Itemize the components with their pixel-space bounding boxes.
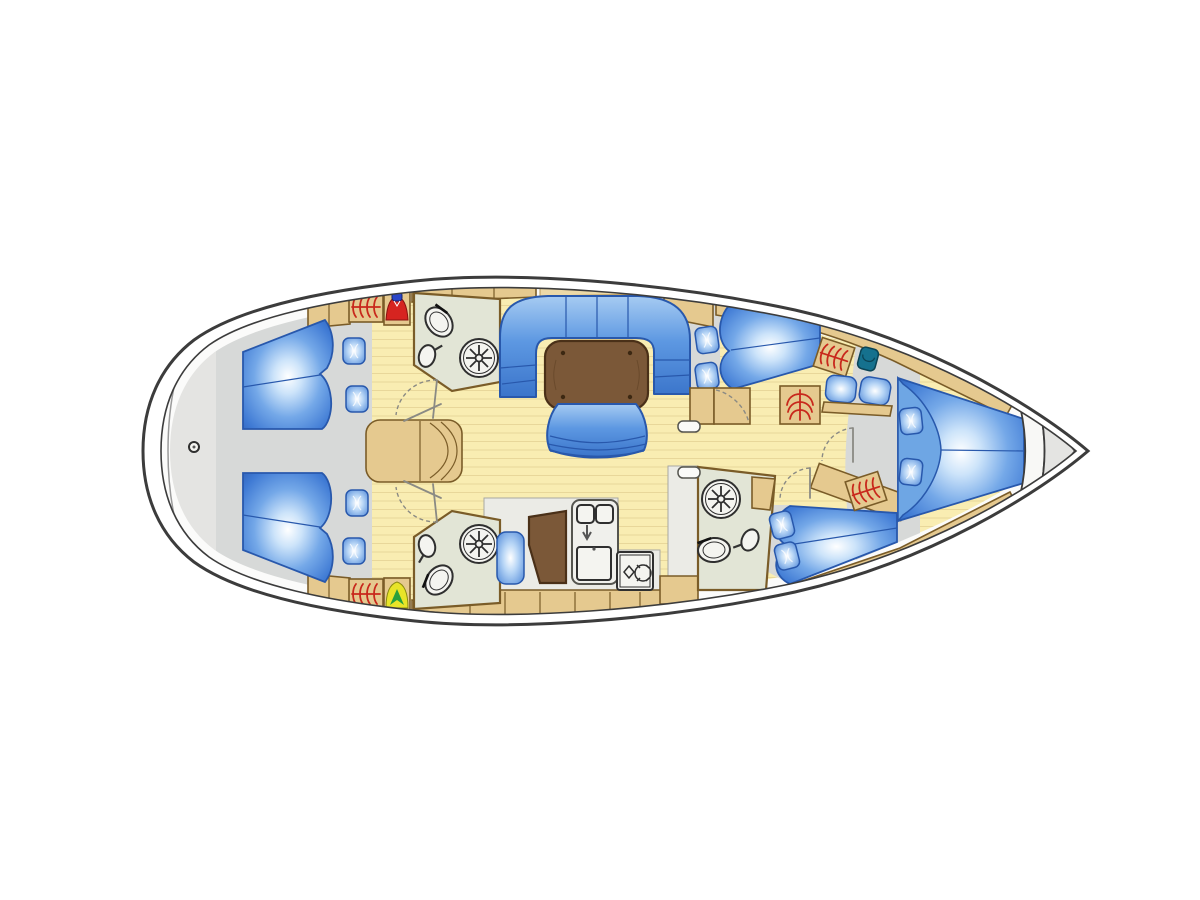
nav-seat <box>497 532 524 584</box>
mid-head-cabinet <box>752 477 775 510</box>
wet-locker-red-jacket <box>384 291 410 325</box>
shower-icon <box>460 525 498 563</box>
shower-icon <box>702 480 740 518</box>
berth-pillow <box>899 458 924 486</box>
berth-pillow <box>694 326 719 355</box>
mid-head-corridor <box>668 466 698 576</box>
yacht-deck-plan-canvas <box>0 0 1200 900</box>
seat-cushion <box>825 375 858 404</box>
shower-icon <box>460 339 498 377</box>
hanging-locker <box>780 386 820 424</box>
berth-pillow <box>346 386 368 412</box>
berth-pillow <box>343 538 365 564</box>
yacht-deck-plan <box>0 0 1200 900</box>
locker <box>714 388 750 424</box>
grab-handle <box>678 421 700 432</box>
sink-bowl <box>577 505 594 523</box>
cabinet <box>690 388 714 424</box>
grab-handle <box>678 467 700 478</box>
mid-head-aft-cabinet <box>660 576 698 604</box>
fridge-latch <box>592 547 595 550</box>
stove <box>617 552 653 590</box>
berth-pillow <box>346 490 368 516</box>
mid-head <box>697 467 775 590</box>
berth-pillow <box>694 362 719 391</box>
sink-bowl <box>596 505 613 523</box>
berth-pillow <box>343 338 365 364</box>
fridge <box>577 547 611 580</box>
seat-cushion <box>858 376 892 407</box>
saloon-table <box>545 341 648 409</box>
rudder-post-pin <box>193 446 196 449</box>
berth-pillow <box>899 407 924 435</box>
